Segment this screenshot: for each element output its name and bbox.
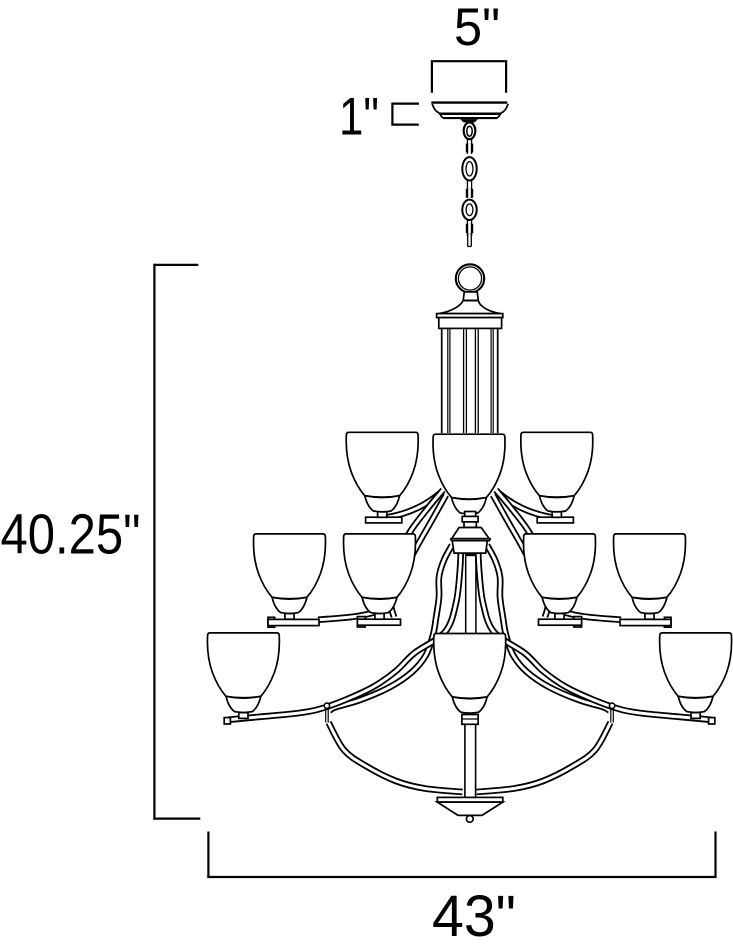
svg-text:40.25": 40.25" — [1, 503, 141, 567]
svg-text:43": 43" — [432, 884, 516, 945]
svg-text:1": 1" — [339, 88, 379, 147]
svg-text:5": 5" — [454, 0, 500, 57]
